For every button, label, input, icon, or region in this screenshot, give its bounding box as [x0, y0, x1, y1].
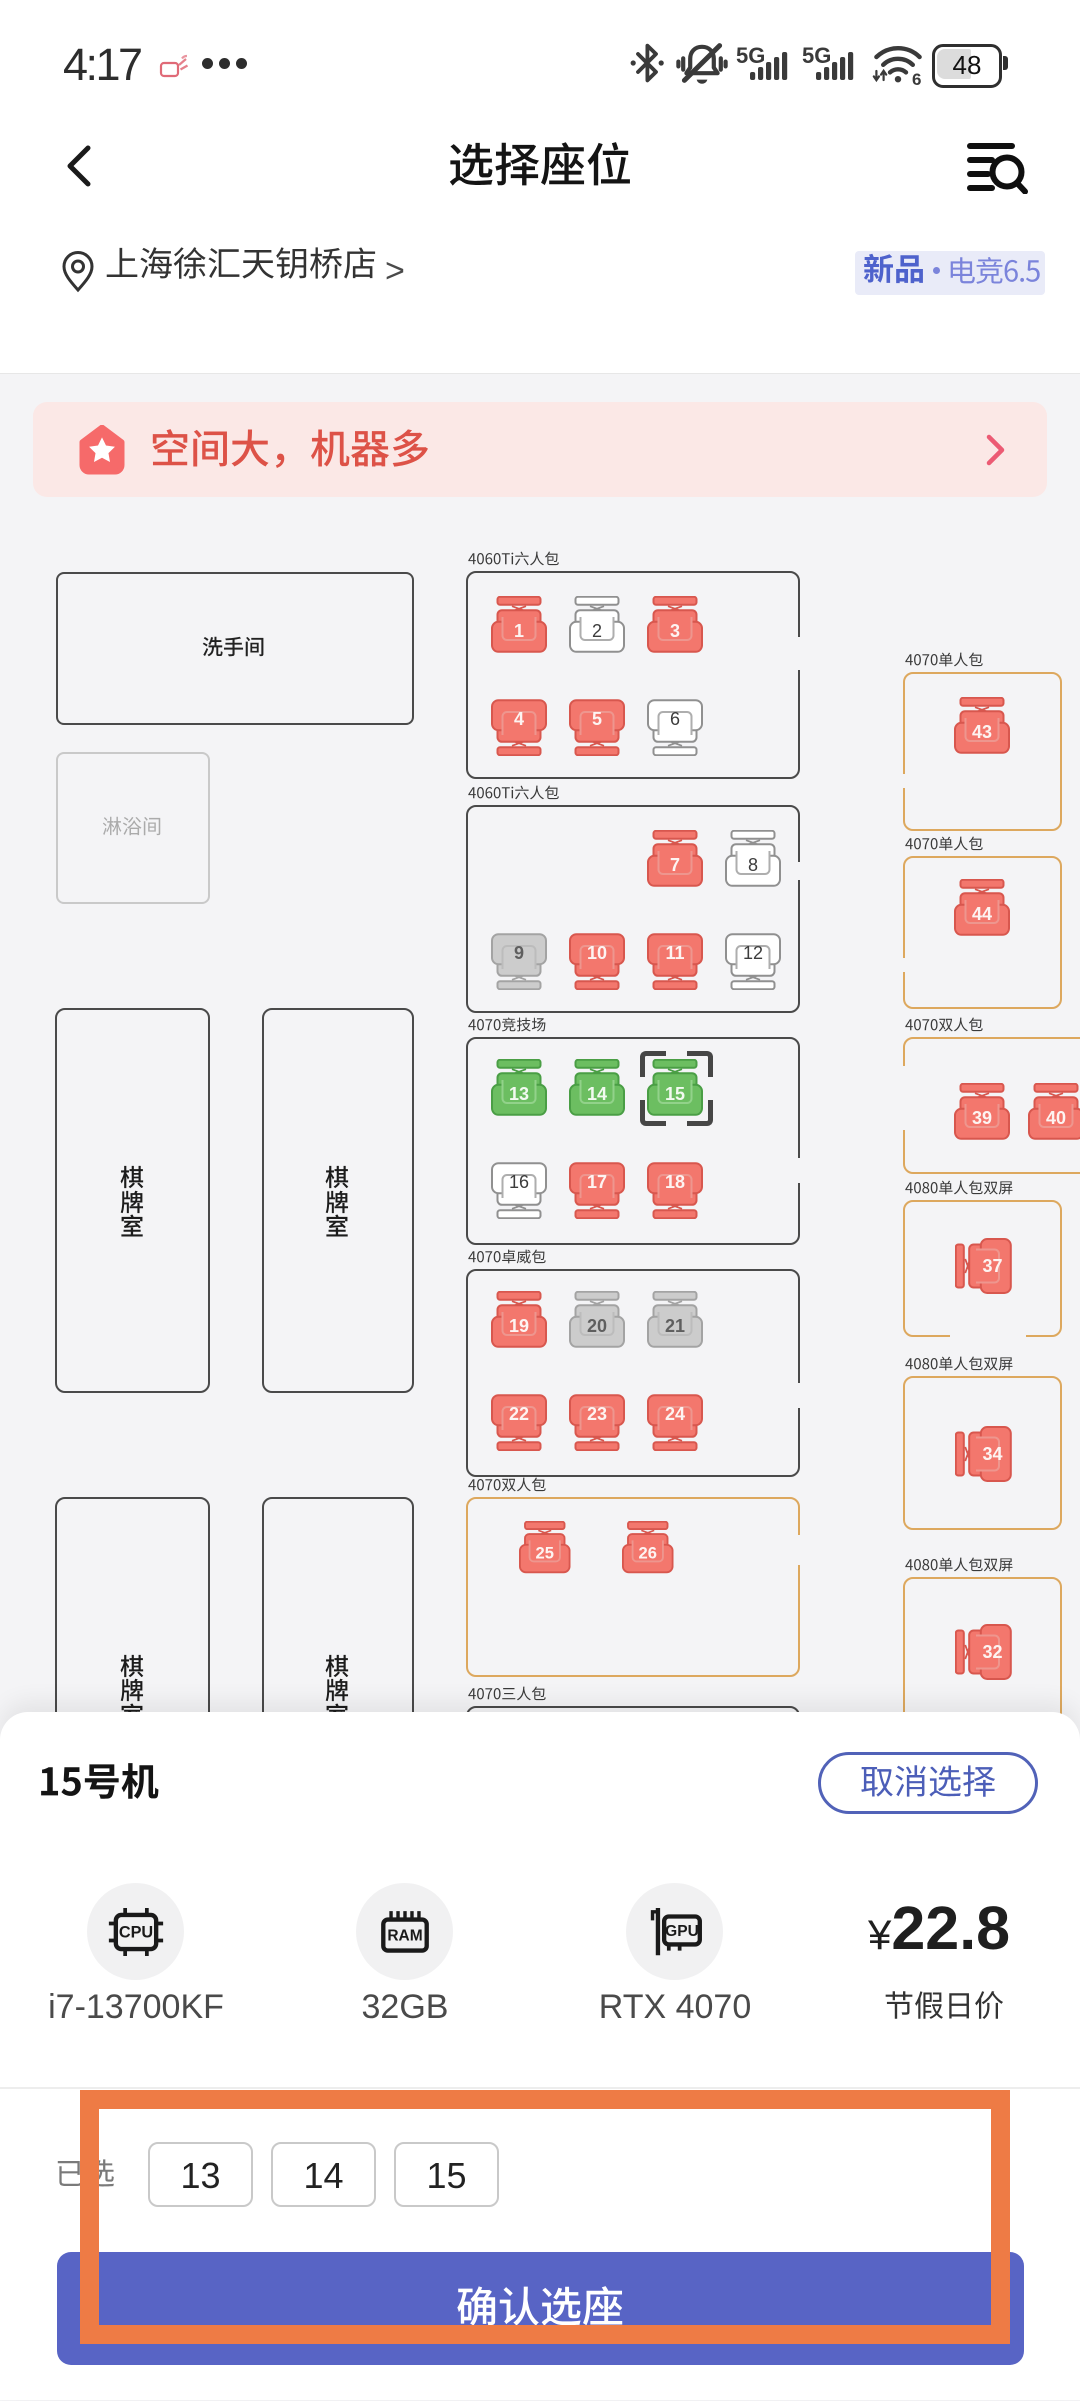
- svg-text:RAM: RAM: [387, 1928, 422, 1945]
- svg-text:CPU: CPU: [119, 1923, 153, 1941]
- svg-text:GPU: GPU: [665, 1923, 699, 1940]
- svg-text:6: 6: [912, 70, 921, 86]
- svg-text:5G: 5G: [736, 44, 765, 68]
- svg-text:5G: 5G: [802, 44, 831, 68]
